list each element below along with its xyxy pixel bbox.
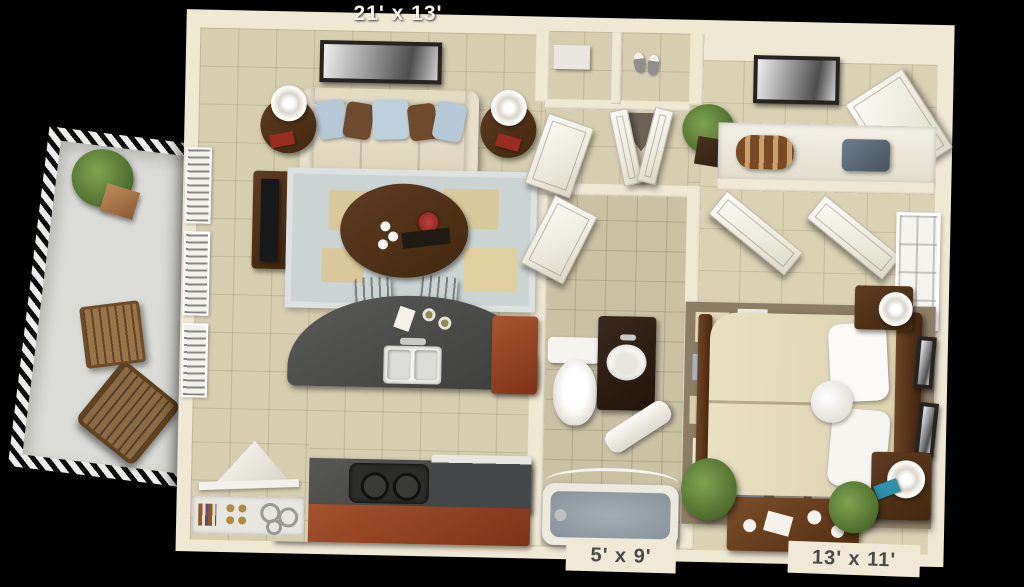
island-cherry-cabinet xyxy=(491,316,539,395)
wall-living-hall xyxy=(535,30,551,102)
rug-accent-square xyxy=(463,247,518,292)
apartment-plan xyxy=(175,9,954,567)
sink-basin xyxy=(414,350,438,380)
faucet-icon xyxy=(400,338,426,346)
suitcase-icon xyxy=(842,139,891,172)
bathroom-vanity xyxy=(597,316,657,411)
cup-decor-icon xyxy=(807,510,821,524)
wall-cubby-divider xyxy=(611,32,623,104)
tray-decor xyxy=(401,227,451,249)
kitchen-sink xyxy=(383,345,442,384)
sofa-pillow-blue xyxy=(431,100,468,143)
closet-box-decor xyxy=(554,45,590,70)
bathtub-water xyxy=(550,491,671,540)
closet-shelf xyxy=(717,122,936,185)
candle-decor-icon xyxy=(378,239,388,249)
sofa-pillow-brown xyxy=(342,101,375,141)
floorplan-scene: 21' x 13' 5' x 9' 13' x 11' xyxy=(0,0,1024,587)
bathroom-dimension-label: 5' x 9' xyxy=(566,538,677,573)
dial-icon xyxy=(266,519,282,535)
kitchen-cabinet-face xyxy=(272,503,531,546)
stove-cooktop xyxy=(349,463,430,505)
sink-basin xyxy=(387,349,411,379)
papers-decor xyxy=(763,511,793,537)
knob-icon xyxy=(238,504,246,512)
tv-icon xyxy=(260,179,280,261)
cup-decor-icon xyxy=(743,519,756,532)
sofa-pillow-blue xyxy=(372,99,409,140)
knob-icon xyxy=(226,516,234,524)
sofa xyxy=(299,88,479,180)
living-window-icon xyxy=(184,147,212,224)
bathtub xyxy=(542,483,679,548)
toilet-bowl xyxy=(552,359,597,426)
wall-hall-right xyxy=(689,34,705,106)
bed-mattress xyxy=(707,312,899,498)
faucet-icon xyxy=(620,334,636,340)
refrigerator xyxy=(430,454,531,512)
island-plate-icon xyxy=(422,308,435,321)
duffel-bag-icon xyxy=(736,135,795,170)
burner-icon xyxy=(361,472,390,501)
washer-dryer-top xyxy=(192,495,305,535)
living-window-icon xyxy=(181,323,209,398)
balcony-table xyxy=(79,300,146,369)
burner-icon xyxy=(393,473,422,502)
island-napkin xyxy=(393,306,415,332)
vanity-sink xyxy=(606,344,647,381)
candle-decor-icon xyxy=(388,231,398,241)
sofa-arm-right xyxy=(463,91,479,179)
candle-decor-icon xyxy=(380,221,390,231)
bedroom-dimension-label: 13' x 11' xyxy=(787,541,920,578)
knob-icon xyxy=(226,504,234,512)
island-plate-icon xyxy=(438,317,451,330)
living-room-dimension-label: 21' x 13' xyxy=(328,2,468,26)
books-decor xyxy=(198,504,216,526)
knob-icon xyxy=(238,516,246,524)
living-window-icon xyxy=(182,231,210,316)
living-wall-art xyxy=(319,40,442,85)
bedroom-wall-art xyxy=(753,55,840,105)
